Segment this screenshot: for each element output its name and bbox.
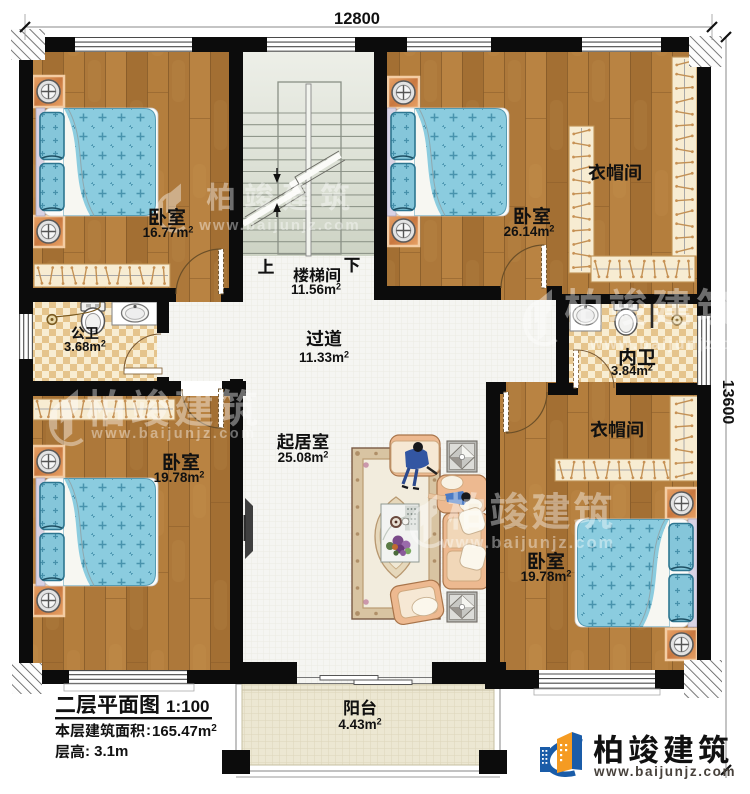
svg-text:1:100: 1:100 — [166, 697, 209, 716]
svg-text:11.33m2: 11.33m2 — [299, 349, 349, 365]
svg-text:13600: 13600 — [719, 380, 736, 425]
svg-text:4.43m2: 4.43m2 — [338, 716, 381, 732]
svg-text:: 3.1m: : 3.1m — [85, 743, 128, 760]
svg-text:3.68m2: 3.68m2 — [64, 339, 106, 355]
svg-text:19.78m2: 19.78m2 — [154, 469, 205, 485]
svg-text:12800: 12800 — [334, 10, 380, 28]
svg-text:www.baijunjz.com: www.baijunjz.com — [90, 426, 256, 442]
svg-text:www.baijunjz.com: www.baijunjz.com — [440, 534, 615, 552]
svg-text:165.47m2: 165.47m2 — [152, 723, 217, 740]
svg-text::: : — [146, 722, 151, 739]
svg-text:19.78m2: 19.78m2 — [521, 568, 572, 584]
svg-text:www.baijunjz.com: www.baijunjz.com — [198, 217, 360, 234]
svg-text:25.08m2: 25.08m2 — [278, 449, 329, 465]
svg-text:www.baijunjz.com: www.baijunjz.com — [593, 764, 736, 779]
svg-text:11.56m2: 11.56m2 — [291, 281, 341, 297]
svg-text:3.84m2: 3.84m2 — [611, 363, 653, 379]
svg-text:16.77m2: 16.77m2 — [143, 224, 194, 240]
svg-text:26.14m2: 26.14m2 — [504, 223, 555, 239]
svg-text:www.baijunjz.com: www.baijunjz.com — [589, 336, 750, 353]
